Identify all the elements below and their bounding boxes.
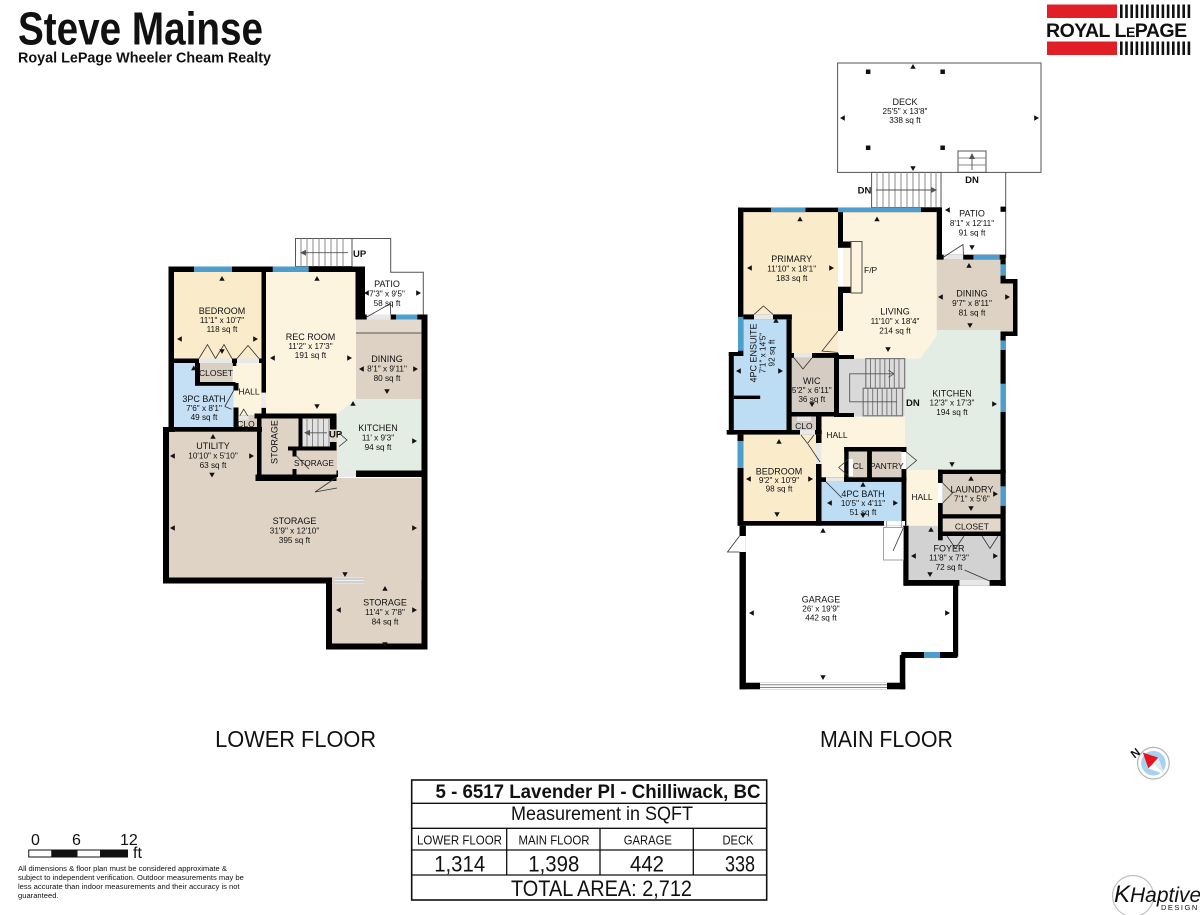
svg-text:7'3" x 9'5": 7'3" x 9'5" [369,290,405,299]
svg-text:STORAGE: STORAGE [270,420,280,464]
svg-text:Royal LePage Wheeler Cheam Rea: Royal LePage Wheeler Cheam Realty [18,51,272,67]
svg-text:442: 442 [630,852,664,877]
svg-text:11'2" x 17'3": 11'2" x 17'3" [288,342,332,351]
svg-text:11'1" x 10'7": 11'1" x 10'7" [200,316,244,325]
svg-text:UP: UP [353,249,367,260]
svg-text:CLOSET: CLOSET [955,522,989,532]
svg-text:25'5" x 13'8": 25'5" x 13'8" [883,107,928,116]
svg-text:49 sq ft: 49 sq ft [191,413,219,422]
svg-text:DINING: DINING [371,354,403,364]
svg-text:7'1" x 14'5": 7'1" x 14'5" [759,333,768,373]
svg-text:Steve Mainse: Steve Mainse [18,3,263,55]
svg-text:11'10" x 18'4": 11'10" x 18'4" [871,317,920,326]
svg-text:338 sq ft: 338 sq ft [889,116,921,125]
svg-text:6: 6 [72,832,81,849]
svg-text:10'5" x 4'11": 10'5" x 4'11" [841,499,885,508]
svg-text:8'1" x 9'11": 8'1" x 9'11" [367,365,407,374]
svg-text:DN: DN [858,186,872,197]
svg-text:BEDROOM: BEDROOM [199,306,246,316]
svg-text:DN: DN [965,175,979,186]
svg-text:HALL: HALL [238,387,260,397]
svg-text:TOTAL AREA: 2,712: TOTAL AREA: 2,712 [511,876,692,901]
svg-text:92 sq ft: 92 sq ft [768,339,777,367]
svg-text:CLOSET: CLOSET [199,368,233,378]
svg-text:guaranteed.: guaranteed. [18,891,59,900]
svg-text:CL: CL [853,461,864,471]
svg-text:51 sq ft: 51 sq ft [850,508,878,517]
svg-text:191 sq ft: 191 sq ft [295,351,327,360]
svg-text:11'4" x 7'8": 11'4" x 7'8" [365,608,405,617]
svg-text:58 sq ft: 58 sq ft [374,299,402,308]
svg-text:194 sq ft: 194 sq ft [936,408,968,417]
svg-text:DN: DN [906,398,920,409]
svg-text:less accurate than indoor meas: less accurate than indoor measurements a… [18,882,240,891]
svg-text:MAIN FLOOR: MAIN FLOOR [519,833,590,848]
svg-text:12'3" x 17'3": 12'3" x 17'3" [930,399,975,408]
svg-text:F/P: F/P [864,265,878,275]
svg-text:11'10" x 18'1": 11'10" x 18'1" [767,265,816,274]
svg-text:4PC ENSUITE: 4PC ENSUITE [749,323,759,382]
svg-text:BEDROOM: BEDROOM [756,467,803,477]
svg-text:GARAGE: GARAGE [802,595,841,605]
svg-text:HALL: HALL [826,430,848,440]
svg-text:PATIO: PATIO [374,279,400,289]
svg-text:LOWER FLOOR: LOWER FLOOR [417,833,502,848]
svg-text:10'10" x 5'10": 10'10" x 5'10" [188,452,238,461]
svg-text:Measurement in SQFT: Measurement in SQFT [511,804,693,825]
svg-text:CLO: CLO [237,419,255,429]
svg-text:All dimensions & floor plan mu: All dimensions & floor plan must be cons… [18,864,227,873]
svg-text:HALL: HALL [911,492,933,502]
svg-text:DESIGN: DESIGN [1161,903,1199,912]
svg-text:11'8" x 7'3": 11'8" x 7'3" [929,554,969,563]
svg-text:PRIMARY: PRIMARY [771,254,812,264]
svg-text:9'7" x 8'11": 9'7" x 8'11" [952,299,992,308]
svg-text:LIVING: LIVING [880,307,910,317]
svg-text:1,314: 1,314 [434,852,485,877]
svg-text:7'1" x 5'6": 7'1" x 5'6" [954,495,990,504]
svg-text:REC ROOM: REC ROOM [286,332,336,342]
svg-text:4PC BATH: 4PC BATH [841,489,884,499]
svg-text:DECK: DECK [723,833,754,848]
svg-text:KITCHEN: KITCHEN [932,389,972,399]
svg-text:118 sq ft: 118 sq ft [207,325,239,334]
svg-text:214 sq ft: 214 sq ft [879,327,911,336]
svg-text:STORAGE: STORAGE [294,459,334,468]
svg-text:FOYER: FOYER [933,544,965,554]
svg-text:3PC BATH: 3PC BATH [182,394,225,404]
svg-text:UP: UP [329,430,343,441]
svg-text:11' x 9'3": 11' x 9'3" [362,434,394,443]
svg-text:WIC: WIC [803,376,821,386]
svg-text:PATIO: PATIO [959,209,985,219]
svg-text:GARAGE: GARAGE [624,833,672,848]
svg-text:338: 338 [725,852,755,877]
svg-text:91 sq ft: 91 sq ft [959,229,987,238]
svg-text:31'9" x 12'10": 31'9" x 12'10" [270,527,320,536]
svg-text:80 sq ft: 80 sq ft [374,374,402,383]
svg-text:PANTRY: PANTRY [870,461,904,471]
svg-text:395 sq ft: 395 sq ft [279,536,311,545]
svg-text:8'1" x 12'11": 8'1" x 12'11" [950,219,994,228]
svg-text:98 sq ft: 98 sq ft [766,485,794,494]
svg-text:1,398: 1,398 [528,852,579,877]
svg-text:ROYAL LEPAGE: ROYAL LEPAGE [1046,20,1187,42]
svg-text:5 - 6517 Lavender Pl - Chilliw: 5 - 6517 Lavender Pl - Chilliwack, BC [436,782,761,803]
svg-text:subject to independent verific: subject to independent verification. Out… [18,873,244,882]
svg-text:CLO: CLO [795,421,813,431]
svg-text:STORAGE: STORAGE [273,516,317,526]
svg-text:LOWER FLOOR: LOWER FLOOR [215,726,376,752]
svg-text:7'6" x 8'1": 7'6" x 8'1" [186,404,222,413]
svg-text:KITCHEN: KITCHEN [358,423,398,433]
svg-text:ft: ft [133,845,142,862]
svg-text:94 sq ft: 94 sq ft [365,443,393,452]
svg-text:63 sq ft: 63 sq ft [200,461,228,470]
svg-text:5'2" x 6'11": 5'2" x 6'11" [792,386,832,395]
svg-text:442 sq ft: 442 sq ft [805,614,837,623]
svg-text:STORAGE: STORAGE [363,598,407,608]
svg-text:DINING: DINING [956,289,988,299]
svg-text:72 sq ft: 72 sq ft [936,563,964,572]
svg-text:26' x 19'9": 26' x 19'9" [802,605,840,614]
svg-text:81 sq ft: 81 sq ft [959,309,987,318]
svg-text:36 sq ft: 36 sq ft [798,395,826,404]
svg-text:0: 0 [31,832,40,849]
svg-text:84 sq ft: 84 sq ft [372,618,400,627]
svg-text:183 sq ft: 183 sq ft [776,274,808,283]
svg-text:LAUNDRY: LAUNDRY [950,485,993,495]
svg-text:UTILITY: UTILITY [196,441,230,451]
svg-text:DECK: DECK [892,97,917,107]
svg-text:MAIN FLOOR: MAIN FLOOR [820,726,953,752]
